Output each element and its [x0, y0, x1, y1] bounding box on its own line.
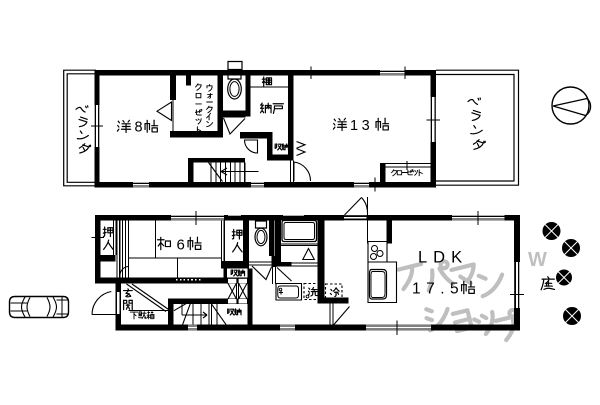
svg-text:13: 13 — [350, 118, 373, 134]
svg-text:17.5: 17.5 — [412, 281, 464, 298]
svg-text:W: W — [528, 249, 547, 271]
svg-text:6: 6 — [177, 237, 185, 254]
svg-text:LDK: LDK — [418, 249, 468, 267]
svg-text:8: 8 — [135, 120, 143, 136]
